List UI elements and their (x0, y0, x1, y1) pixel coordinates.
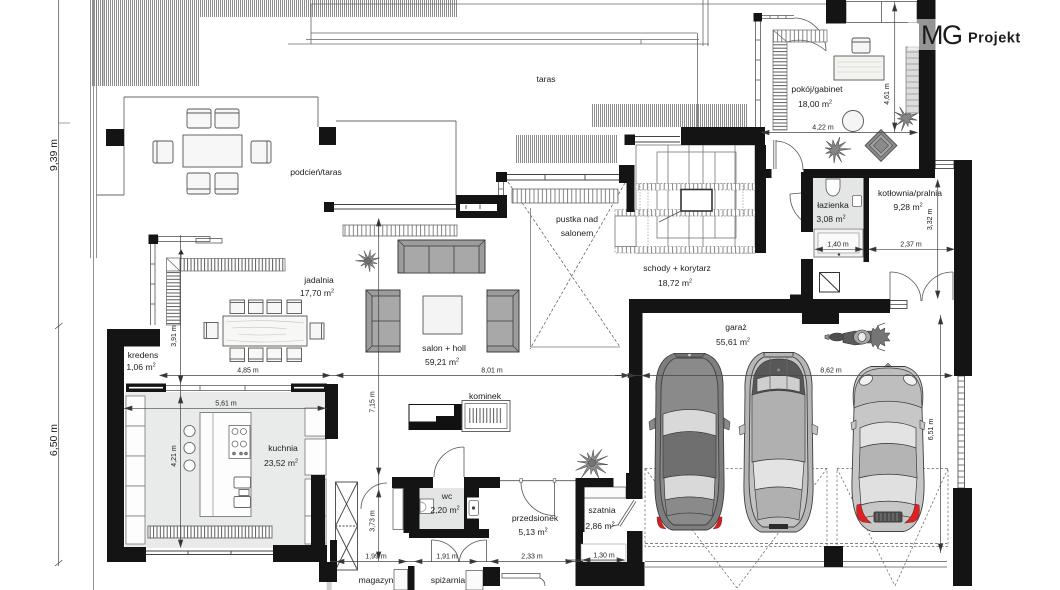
svg-text:pokój/gabinet: pokój/gabinet (791, 84, 843, 94)
svg-text:3,08 m2: 3,08 m2 (816, 214, 845, 224)
svg-text:jadalnia: jadalnia (303, 275, 334, 285)
svg-text:kotłownia/pralnia: kotłownia/pralnia (878, 188, 942, 198)
svg-text:4,61 m: 4,61 m (884, 83, 891, 105)
svg-text:18,00 m2: 18,00 m2 (798, 99, 832, 109)
svg-text:3,73 m: 3,73 m (370, 510, 377, 532)
svg-text:MG: MG (921, 20, 962, 50)
svg-text:1,40 m: 1,40 m (827, 241, 849, 248)
svg-text:17,70 m2: 17,70 m2 (300, 288, 334, 298)
svg-text:salonem: salonem (561, 228, 593, 238)
svg-text:6,50 m: 6,50 m (48, 424, 60, 456)
svg-text:2,33 m: 2,33 m (521, 554, 543, 561)
svg-text:2,37 m: 2,37 m (900, 241, 922, 248)
svg-text:garaż: garaż (725, 322, 747, 332)
svg-text:2,86 m2: 2,86 m2 (585, 521, 614, 531)
svg-text:8,01 m: 8,01 m (481, 367, 503, 374)
svg-text:5,61 m: 5,61 m (215, 401, 237, 408)
svg-text:3,32 m: 3,32 m (927, 209, 934, 231)
svg-text:salon + holl: salon + holl (422, 343, 466, 353)
svg-text:wc: wc (441, 491, 453, 501)
svg-text:18,72 m2: 18,72 m2 (658, 278, 692, 288)
svg-text:przedsionek: przedsionek (512, 513, 559, 523)
svg-text:pustka nad: pustka nad (556, 214, 598, 224)
svg-text:łazienka: łazienka (817, 200, 849, 210)
svg-text:7,15 m: 7,15 m (370, 391, 377, 413)
svg-text:kuchnia: kuchnia (268, 443, 298, 453)
svg-text:podcień/taras: podcień/taras (290, 167, 342, 177)
svg-text:55,61 m2: 55,61 m2 (716, 337, 750, 347)
svg-text:1,30 m: 1,30 m (593, 553, 615, 560)
svg-text:5,13 m2: 5,13 m2 (518, 527, 547, 537)
svg-text:23,52 m2: 23,52 m2 (264, 458, 298, 468)
svg-text:Projekt: Projekt (968, 31, 1021, 47)
svg-text:8,62 m: 8,62 m (820, 368, 842, 375)
svg-text:3,91 m: 3,91 m (171, 325, 178, 347)
svg-text:9,39 m: 9,39 m (48, 139, 60, 171)
svg-text:4,21 m: 4,21 m (171, 445, 178, 467)
svg-text:kominek: kominek (469, 391, 502, 401)
svg-text:59,21 m2: 59,21 m2 (425, 357, 459, 367)
svg-text:szatnia: szatnia (588, 505, 615, 515)
svg-text:1,91 m: 1,91 m (436, 554, 458, 561)
svg-text:taras: taras (536, 74, 555, 84)
svg-text:9,28 m2: 9,28 m2 (893, 202, 922, 212)
svg-text:1,06 m2: 1,06 m2 (126, 362, 155, 372)
svg-text:6,51 m: 6,51 m (928, 419, 935, 441)
svg-text:4,22 m: 4,22 m (812, 125, 834, 132)
svg-text:1,99 m: 1,99 m (365, 554, 387, 561)
svg-text:4,85 m: 4,85 m (237, 367, 259, 374)
svg-text:schody + korytarz: schody + korytarz (643, 263, 711, 273)
svg-text:spiżarnia: spiżarnia (431, 575, 466, 585)
svg-text:magazyn: magazyn (359, 575, 394, 585)
svg-text:kredens: kredens (128, 350, 159, 360)
svg-text:2,20 m2: 2,20 m2 (430, 505, 459, 515)
